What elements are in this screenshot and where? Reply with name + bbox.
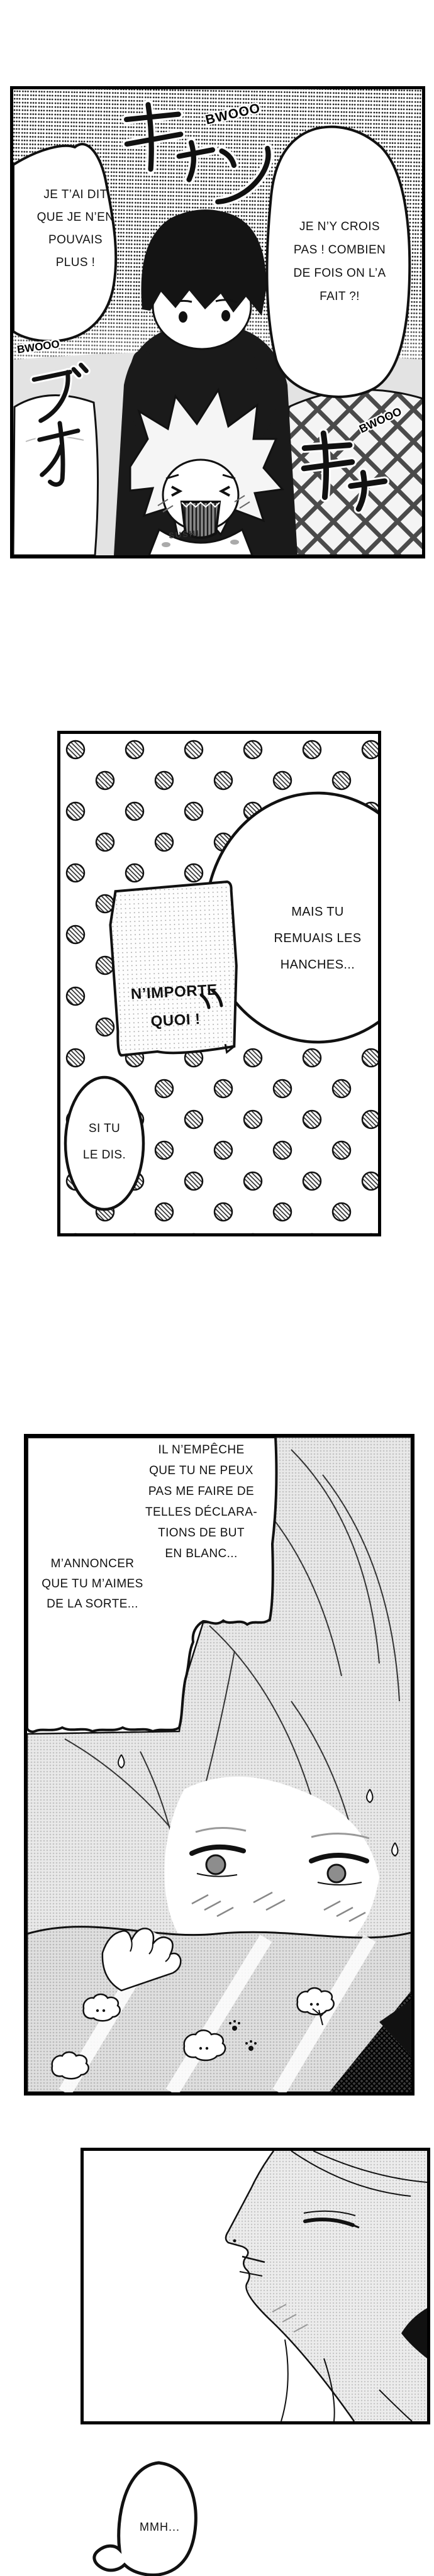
dialogue-line: DE FOIS ON L’A [293, 262, 386, 285]
aside-text: M’ANNONCER QUE TU M’AIMES DE LA SORTE... [42, 1554, 143, 1614]
dialogue-line: PAS ME FAIRE DE [145, 1481, 257, 1502]
dialogue-line: TIONS DE BUT [145, 1523, 257, 1543]
note-line: QUOI ! [131, 1004, 220, 1036]
dialogue-line: QUE TU M’AIMES [42, 1574, 143, 1594]
mmh-bubble: MMH... [88, 2457, 208, 2576]
dialogue-line: LE DIS. [83, 1142, 126, 1169]
dialogue-line: PAS ! COMBIEN [293, 238, 386, 262]
dialogue-line: HANCHES... [274, 952, 362, 978]
speech-bubble-left-text: JE T’AI DIT QUE JE N’EN POUVAIS PLUS ! [37, 184, 114, 274]
dialogue-line: REMUAIS LES [274, 925, 362, 952]
mmh-text: MMH... [140, 2521, 180, 2534]
dialogue-line: QUE TU NE PEUX [145, 1460, 257, 1481]
dialogue-line: JE N’Y CROIS [293, 215, 386, 238]
speech-bubble-small-text: SI TU LE DIS. [83, 1116, 126, 1169]
panel-4 [81, 2148, 430, 2424]
dialogue-line: MMH... [140, 2521, 180, 2534]
panel-3: IL N’EMPÊCHE QUE TU NE PEUX PAS ME FAIRE… [24, 1434, 415, 2096]
panel-1: JE T’AI DIT QUE JE N’EN POUVAIS PLUS ! J… [10, 86, 425, 558]
note-text: N’IMPORTE QUOI ! [130, 975, 220, 1036]
mmh-bubble-shape [88, 2457, 208, 2576]
dialogue-line: QUE JE N’EN [37, 206, 114, 229]
panel-2: N’IMPORTE QUOI ! MAIS TU REMUAIS LES HAN… [57, 731, 381, 1236]
pillow [13, 396, 98, 555]
panel1-artwork [13, 89, 422, 555]
note-line: N’IMPORTE [130, 975, 218, 1008]
dialogue-line: TELLES DÉCLARA- [145, 1502, 257, 1523]
manga-page: JE T’AI DIT QUE JE N’EN POUVAIS PLUS ! J… [0, 0, 434, 2576]
dialogue-line: IL N’EMPÊCHE [145, 1440, 257, 1460]
dialogue-line: MAIS TU [274, 899, 362, 925]
dialogue-line: EN BLANC... [145, 1543, 257, 1564]
dialogue-line: PLUS ! [37, 252, 114, 274]
dialogue-line: JE T’AI DIT [37, 184, 114, 206]
panel4-artwork [84, 2151, 427, 2421]
speech-bubble-text: IL N’EMPÊCHE QUE TU NE PEUX PAS ME FAIRE… [145, 1440, 257, 1564]
dialogue-line: DE LA SORTE... [42, 1594, 143, 1614]
dialogue-line: FAIT ?! [293, 285, 386, 308]
dialogue-line: SI TU [83, 1116, 126, 1142]
speech-bubble-main-text: MAIS TU REMUAIS LES HANCHES... [274, 899, 362, 978]
speech-bubble-right-text: JE N’Y CROIS PAS ! COMBIEN DE FOIS ON L’… [293, 215, 386, 308]
dialogue-line: POUVAIS [37, 229, 114, 252]
nostril [233, 2240, 236, 2243]
dialogue-line: M’ANNONCER [42, 1554, 143, 1574]
